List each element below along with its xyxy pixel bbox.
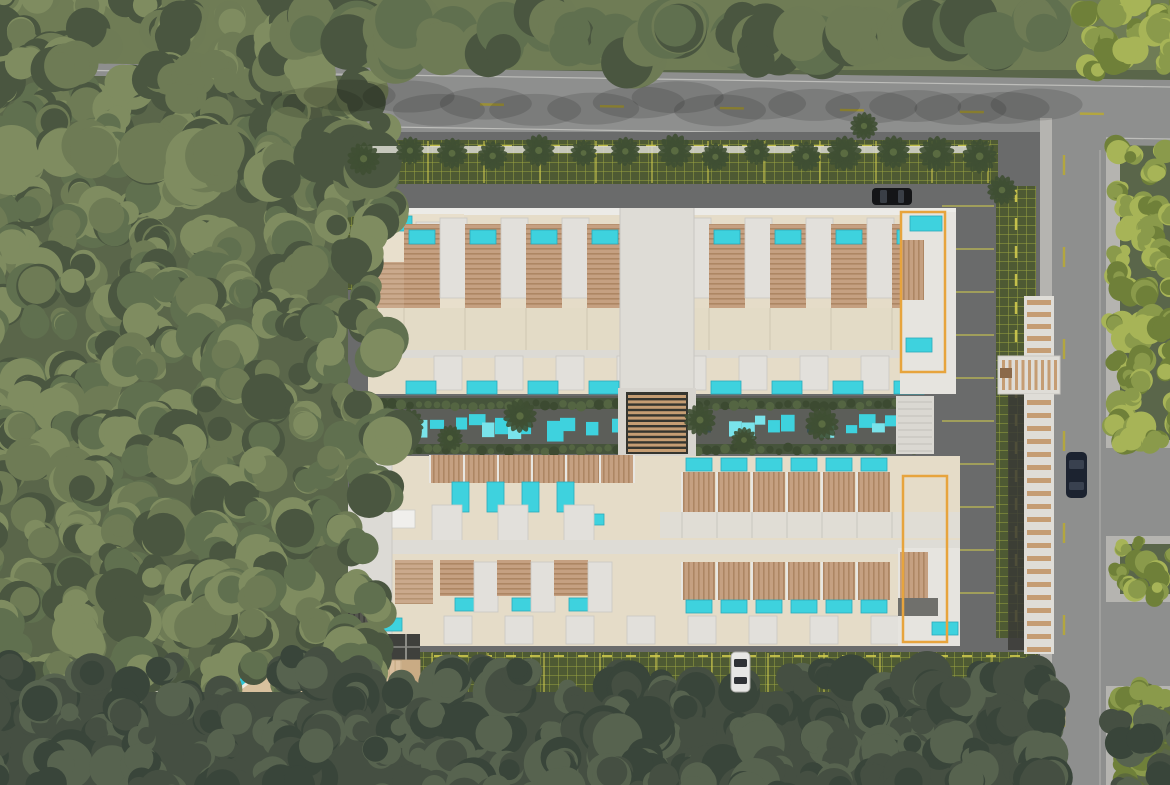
courtyard	[360, 388, 934, 458]
black-car	[872, 188, 912, 205]
south-building	[383, 455, 960, 646]
north-building	[368, 208, 956, 394]
white-car	[731, 652, 750, 692]
aerial-site-render	[0, 0, 1170, 785]
navy-car	[1066, 452, 1087, 498]
